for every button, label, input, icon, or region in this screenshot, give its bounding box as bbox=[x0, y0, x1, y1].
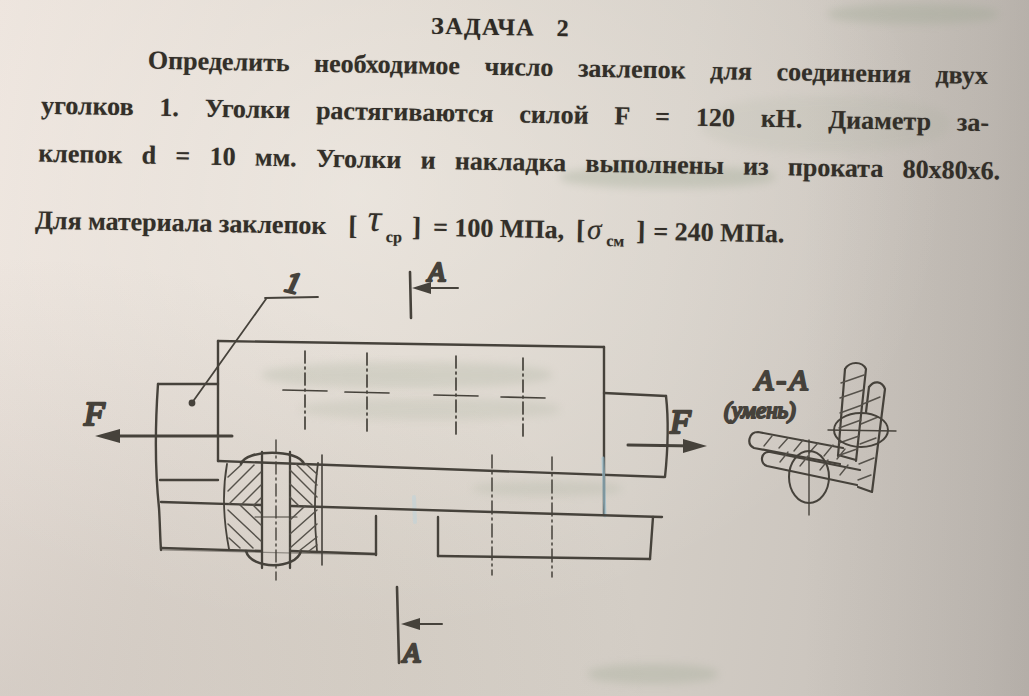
rivet-center-crosses bbox=[283, 351, 545, 436]
section-label-bottom: A bbox=[401, 637, 421, 668]
section-marker-bottom: A bbox=[397, 587, 442, 668]
section-view-a-a: A-A (умень) bbox=[724, 363, 896, 515]
section-marker-top: A bbox=[410, 256, 458, 318]
section-view-note: (умень) bbox=[724, 398, 796, 423]
hatching bbox=[228, 464, 317, 551]
section-view-title: A-A bbox=[753, 363, 811, 396]
part-number-label: 1 bbox=[282, 265, 305, 301]
rivet-centerline bbox=[828, 430, 896, 431]
arrowhead-icon bbox=[683, 439, 707, 453]
force-label-left: F bbox=[83, 395, 106, 432]
cover-plate bbox=[218, 341, 664, 522]
blue-scan-artifact bbox=[603, 458, 605, 516]
technical-drawing: 1 F F A A A-A (умень) bbox=[0, 0, 1029, 696]
left-angle-member bbox=[156, 384, 376, 555]
arrowhead-icon bbox=[401, 618, 420, 630]
right-angle-member bbox=[604, 393, 668, 477]
section-label-top: A bbox=[426, 256, 446, 287]
force-label-right: F bbox=[669, 403, 692, 440]
scanned-textbook-page: ЗАДАЧА 2 Определить необходимое число за… bbox=[0, 0, 1029, 696]
